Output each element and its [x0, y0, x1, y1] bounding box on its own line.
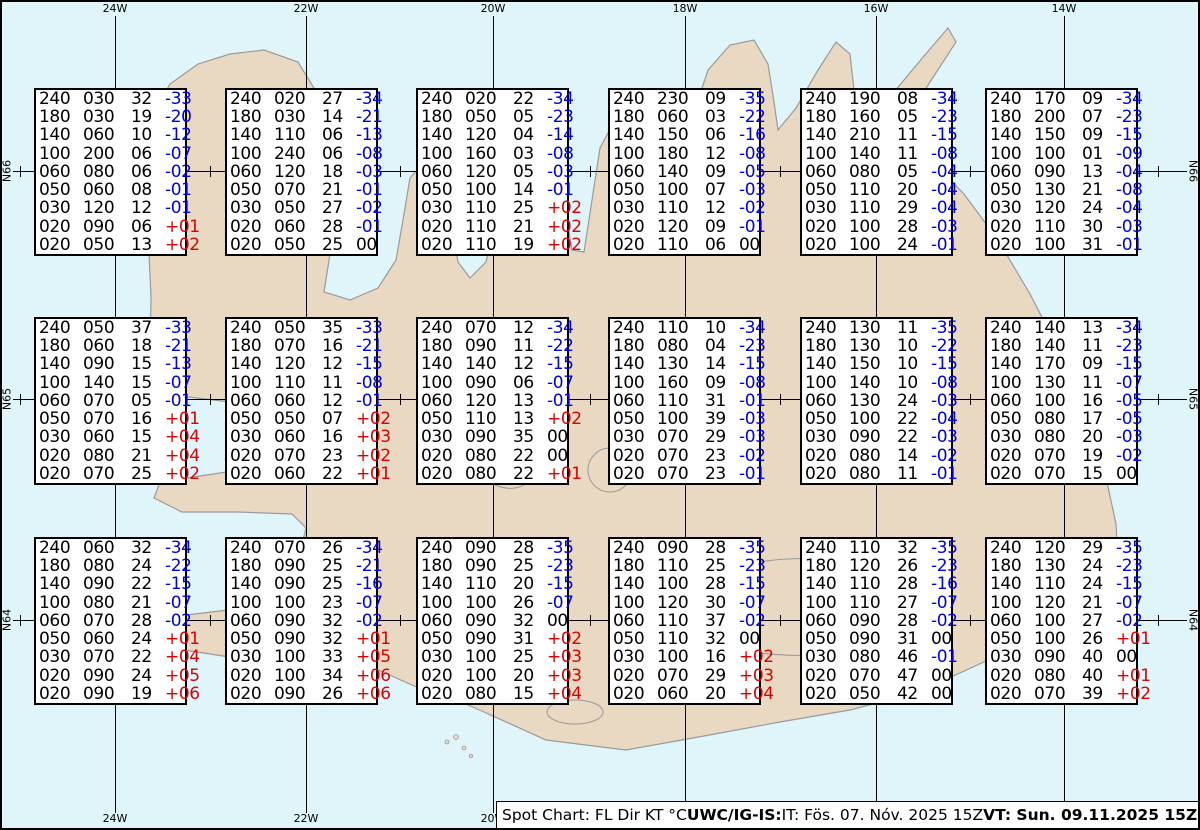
kt-value: 39: [1082, 685, 1116, 703]
dir-value: 090: [83, 685, 131, 703]
temp-value: -04: [1116, 199, 1143, 217]
dir-value: 090: [465, 428, 513, 446]
station-row: 10011011-08: [230, 374, 373, 392]
fl-value: 030: [990, 428, 1034, 446]
station-box: 24005035-3318007016-2114012012-151001101…: [225, 317, 378, 485]
dir-value: 110: [657, 392, 705, 410]
kt-value: 05: [131, 392, 165, 410]
station-row: 24002022-34: [421, 90, 564, 108]
station-row: 24011032-35: [805, 539, 948, 557]
dir-value: 090: [274, 612, 322, 630]
kt-value: 01: [1082, 145, 1116, 163]
fl-value: 240: [990, 539, 1034, 557]
dir-value: 070: [657, 465, 705, 483]
station-row: 0200701500: [990, 465, 1133, 483]
kt-value: 30: [1082, 218, 1116, 236]
dir-value: 070: [849, 667, 897, 685]
dir-value: 110: [657, 557, 705, 575]
dir-value: 070: [83, 648, 131, 666]
station-row: 0200504200: [805, 685, 948, 703]
fl-value: 180: [39, 108, 83, 126]
fl-value: 180: [990, 108, 1034, 126]
fl-value: 180: [39, 337, 83, 355]
dir-value: 140: [83, 374, 131, 392]
dir-value: 030: [274, 108, 322, 126]
fl-value: 030: [230, 428, 274, 446]
station-row: 05010039-03: [613, 410, 756, 428]
dir-value: 090: [83, 218, 131, 236]
kt-value: 25: [513, 199, 547, 217]
fl-value: 060: [613, 163, 657, 181]
station-row: 24014013-34: [990, 319, 1133, 337]
fl-value: 050: [39, 410, 83, 428]
dir-value: 100: [465, 648, 513, 666]
dir-value: 020: [465, 90, 513, 108]
station-row: 02006020+04: [613, 685, 756, 703]
kt-value: 05: [897, 163, 931, 181]
dir-value: 180: [657, 145, 705, 163]
kt-value: 13: [513, 410, 547, 428]
station-row: 14012004-14: [421, 126, 564, 144]
temp-value: -21: [165, 337, 192, 355]
dir-value: 060: [83, 630, 131, 648]
station-box: 24009028-3518009025-2314011020-151001002…: [416, 537, 569, 705]
dir-value: 110: [657, 319, 705, 337]
fl-value: 100: [39, 145, 83, 163]
dir-value: 120: [657, 594, 705, 612]
dir-value: 100: [1034, 630, 1082, 648]
kt-value: 32: [322, 612, 356, 630]
dir-value: 080: [83, 594, 131, 612]
fl-value: 020: [421, 218, 465, 236]
kt-value: 06: [705, 126, 739, 144]
kt-value: 06: [513, 374, 547, 392]
dir-value: 100: [465, 667, 513, 685]
kt-value: 15: [131, 428, 165, 446]
kt-value: 35: [513, 428, 547, 446]
station-row: 03012012-01: [39, 199, 182, 217]
kt-value: 15: [131, 374, 165, 392]
kt-value: 23: [705, 465, 739, 483]
station-row: 18007016-21: [230, 337, 373, 355]
temp-value: +02: [356, 447, 391, 465]
kt-value: 29: [1082, 539, 1116, 557]
dir-value: 080: [1034, 410, 1082, 428]
temp-value: -02: [165, 612, 192, 630]
dir-value: 080: [849, 163, 897, 181]
kt-value: 20: [513, 575, 547, 593]
dir-value: 120: [465, 126, 513, 144]
temp-value: +04: [547, 685, 582, 703]
kt-value: 12: [131, 199, 165, 217]
kt-value: 10: [131, 126, 165, 144]
fl-value: 180: [230, 108, 274, 126]
temp-value: -05: [1116, 410, 1143, 428]
kt-value: 12: [322, 392, 356, 410]
station-row: 06012013-01: [421, 392, 564, 410]
dir-value: 130: [657, 355, 705, 373]
station-row: 02009006+01: [39, 218, 182, 236]
temp-value: -04: [931, 199, 958, 217]
fl-value: 100: [805, 594, 849, 612]
fl-value: 100: [990, 374, 1034, 392]
fl-value: 050: [613, 181, 657, 199]
dir-value: 110: [465, 575, 513, 593]
temp-value: -23: [931, 108, 958, 126]
kt-value: 21: [513, 218, 547, 236]
kt-value: 09: [1082, 126, 1116, 144]
fl-value: 050: [990, 181, 1034, 199]
station-row: 24002027-34: [230, 90, 373, 108]
station-row: 02008040+01: [990, 667, 1133, 685]
dir-value: 090: [465, 337, 513, 355]
station-row: 06007005-01: [39, 392, 182, 410]
temp-value: -01: [356, 218, 383, 236]
station-row: 02010031-01: [990, 236, 1133, 254]
station-row: 18009011-22: [421, 337, 564, 355]
dir-value: 150: [657, 126, 705, 144]
kt-value: 11: [897, 126, 931, 144]
fl-value: 100: [990, 594, 1034, 612]
station-row: 14017009-15: [990, 355, 1133, 373]
station-row: 05008017-05: [990, 410, 1133, 428]
temp-value: -02: [356, 612, 383, 630]
fl-value: 020: [230, 218, 274, 236]
station-row: 24012029-35: [990, 539, 1133, 557]
station-row: 02007023-02: [613, 447, 756, 465]
dir-value: 120: [274, 163, 322, 181]
kt-value: 40: [1082, 667, 1116, 685]
fl-value: 100: [613, 374, 657, 392]
fl-value: 100: [230, 374, 274, 392]
station-row: 05011013+02: [421, 410, 564, 428]
station-row: 14011028-16: [805, 575, 948, 593]
kt-value: 20: [705, 685, 739, 703]
dir-value: 100: [274, 667, 322, 685]
station-row: 24019008-34: [805, 90, 948, 108]
temp-value: -07: [356, 594, 383, 612]
station-row: 18006003-22: [613, 108, 756, 126]
kt-value: 25: [322, 236, 356, 254]
temp-value: 00: [356, 236, 377, 254]
dir-value: 120: [465, 163, 513, 181]
fl-value: 030: [990, 648, 1034, 666]
dir-value: 100: [274, 648, 322, 666]
station-row: 03011025+02: [421, 199, 564, 217]
kt-value: 22: [897, 428, 931, 446]
kt-value: 06: [131, 218, 165, 236]
fl-value: 140: [805, 355, 849, 373]
kt-value: 14: [322, 108, 356, 126]
temp-value: +01: [356, 465, 391, 483]
fl-value: 180: [990, 337, 1034, 355]
kt-value: 26: [322, 539, 356, 557]
station-row: 02007039+02: [990, 685, 1133, 703]
station-row: 03009022-03: [805, 428, 948, 446]
dir-value: 070: [274, 337, 322, 355]
temp-value: -03: [931, 428, 958, 446]
kt-value: 31: [897, 630, 931, 648]
dir-value: 110: [849, 539, 897, 557]
kt-value: 16: [322, 428, 356, 446]
station-row: 14009015-13: [39, 355, 182, 373]
temp-value: +06: [356, 667, 391, 685]
temp-value: -01: [356, 181, 383, 199]
fl-value: 030: [230, 199, 274, 217]
fl-value: 020: [230, 685, 274, 703]
fl-value: 240: [39, 539, 83, 557]
kt-value: 30: [705, 594, 739, 612]
fl-value: 060: [613, 612, 657, 630]
fl-value: 240: [421, 90, 465, 108]
kt-value: 31: [513, 630, 547, 648]
kt-value: 24: [1082, 199, 1116, 217]
dir-value: 090: [465, 539, 513, 557]
temp-value: -07: [1116, 374, 1143, 392]
kt-value: 22: [513, 90, 547, 108]
kt-value: 10: [705, 319, 739, 337]
fl-value: 100: [421, 374, 465, 392]
dir-value: 080: [465, 447, 513, 465]
kt-value: 09: [705, 218, 739, 236]
temp-value: -20: [165, 108, 192, 126]
fl-value: 020: [39, 236, 83, 254]
dir-value: 160: [849, 108, 897, 126]
temp-value: -01: [739, 218, 766, 236]
temp-value: -07: [165, 594, 192, 612]
temp-value: -03: [1116, 218, 1143, 236]
station-row: 14011006-13: [230, 126, 373, 144]
station-row: 24009028-35: [421, 539, 564, 557]
temp-value: +02: [356, 410, 391, 428]
spot-chart-canvas: 24W24W22W22W20W20W18W16W14WN66N66N65N65N…: [0, 0, 1200, 830]
temp-value: -03: [356, 163, 383, 181]
fl-value: 100: [990, 145, 1034, 163]
kt-value: 13: [1082, 319, 1116, 337]
temp-value: -07: [547, 374, 574, 392]
dir-value: 110: [657, 612, 705, 630]
dir-value: 060: [657, 685, 705, 703]
fl-value: 140: [421, 355, 465, 373]
dir-value: 050: [849, 685, 897, 703]
station-row: 10010001-09: [990, 145, 1133, 163]
fl-value: 180: [421, 108, 465, 126]
station-row: 03008046-01: [805, 648, 948, 666]
fl-value: 060: [990, 392, 1034, 410]
fl-value: 240: [613, 90, 657, 108]
station-row: 24007026-34: [230, 539, 373, 557]
dir-value: 120: [274, 355, 322, 373]
temp-value: +01: [165, 410, 200, 428]
kt-value: 06: [705, 236, 739, 254]
station-row: 02008015+04: [421, 685, 564, 703]
fl-value: 180: [613, 337, 657, 355]
station-row: 10013011-07: [990, 374, 1133, 392]
temp-value: -34: [1116, 90, 1143, 108]
station-row: 03007029-03: [613, 428, 756, 446]
dir-value: 090: [274, 557, 322, 575]
kt-value: 27: [897, 594, 931, 612]
kt-value: 11: [897, 465, 931, 483]
fl-value: 100: [421, 145, 465, 163]
fl-value: 180: [805, 108, 849, 126]
dir-value: 090: [274, 685, 322, 703]
station-row: 24017009-34: [990, 90, 1133, 108]
station-row: 18011025-23: [613, 557, 756, 575]
fl-value: 050: [613, 410, 657, 428]
station-row: 18008004-23: [613, 337, 756, 355]
kt-value: 12: [322, 355, 356, 373]
fl-value: 100: [805, 374, 849, 392]
kt-value: 14: [705, 355, 739, 373]
fl-value: 140: [613, 355, 657, 373]
temp-value: -02: [931, 612, 958, 630]
kt-value: 03: [513, 145, 547, 163]
station-row: 02007023+02: [230, 447, 373, 465]
dir-value: 110: [657, 630, 705, 648]
station-row: 10014010-08: [805, 374, 948, 392]
fl-value: 060: [805, 163, 849, 181]
fl-value: 140: [230, 126, 274, 144]
fl-value: 050: [421, 630, 465, 648]
kt-value: 15: [131, 355, 165, 373]
station-row: 14011024-15: [990, 575, 1133, 593]
station-row: 06010027-02: [990, 612, 1133, 630]
station-row: 02005013+02: [39, 236, 182, 254]
dir-value: 120: [1034, 199, 1082, 217]
dir-value: 100: [1034, 612, 1082, 630]
dir-value: 090: [465, 612, 513, 630]
station-row: 18009025-21: [230, 557, 373, 575]
station-row: 06009013-04: [990, 163, 1133, 181]
fl-value: 020: [230, 667, 274, 685]
kt-value: 32: [131, 90, 165, 108]
temp-value: -05: [739, 163, 766, 181]
temp-value: -01: [547, 181, 574, 199]
dir-value: 050: [83, 236, 131, 254]
dir-value: 200: [83, 145, 131, 163]
kt-value: 31: [1082, 236, 1116, 254]
station-row: 18003014-21: [230, 108, 373, 126]
station-row: 0201100600: [613, 236, 756, 254]
dir-value: 080: [1034, 428, 1082, 446]
dir-value: 110: [657, 236, 705, 254]
fl-value: 030: [39, 199, 83, 217]
temp-value: -22: [165, 557, 192, 575]
station-row: 06008006-02: [39, 163, 182, 181]
fl-value: 020: [39, 685, 83, 703]
kt-value: 14: [897, 447, 931, 465]
kt-value: 06: [131, 163, 165, 181]
fl-value: 030: [990, 199, 1034, 217]
station-row: 03005027-02: [230, 199, 373, 217]
dir-value: 070: [83, 465, 131, 483]
kt-value: 18: [322, 163, 356, 181]
dir-value: 160: [465, 145, 513, 163]
temp-value: -08: [547, 145, 574, 163]
station-row: 0501103200: [613, 630, 756, 648]
temp-value: -22: [739, 108, 766, 126]
station-row: 10014015-07: [39, 374, 182, 392]
dir-value: 050: [274, 410, 322, 428]
dir-value: 100: [849, 410, 897, 428]
station-box: 24005037-3318006018-2114009015-131001401…: [34, 317, 187, 485]
kt-value: 22: [513, 447, 547, 465]
station-row: 24007012-34: [421, 319, 564, 337]
station-box: 24017009-3418020007-2314015009-151001000…: [985, 88, 1138, 256]
fl-value: 020: [990, 465, 1034, 483]
kt-value: 09: [705, 374, 739, 392]
fl-value: 100: [805, 145, 849, 163]
dir-value: 070: [1034, 685, 1082, 703]
kt-value: 32: [131, 539, 165, 557]
kt-value: 16: [131, 410, 165, 428]
fl-value: 060: [421, 392, 465, 410]
dir-value: 090: [274, 575, 322, 593]
temp-value: -02: [356, 199, 383, 217]
fl-value: 100: [230, 594, 274, 612]
fl-value: 030: [805, 428, 849, 446]
dir-value: 070: [465, 319, 513, 337]
fl-value: 050: [990, 630, 1034, 648]
caption-segment: Spot Chart: FL Dir KT °C: [502, 806, 687, 824]
fl-value: 030: [421, 199, 465, 217]
temp-value: -07: [547, 594, 574, 612]
kt-value: 08: [131, 181, 165, 199]
kt-value: 28: [322, 218, 356, 236]
station-row: 10024006-08: [230, 145, 373, 163]
station-box: 24014013-3418014011-2314017009-151001301…: [985, 317, 1138, 485]
dir-value: 130: [849, 319, 897, 337]
station-row: 02008022+01: [421, 465, 564, 483]
temp-value: -08: [739, 374, 766, 392]
station-row: 0600903200: [421, 612, 564, 630]
temp-value: +06: [165, 685, 200, 703]
dir-value: 070: [274, 539, 322, 557]
kt-value: 19: [131, 685, 165, 703]
fl-value: 180: [421, 337, 465, 355]
kt-value: 29: [897, 199, 931, 217]
dir-value: 120: [849, 557, 897, 575]
temp-value: +03: [547, 648, 582, 666]
fl-value: 140: [990, 355, 1034, 373]
temp-value: 00: [1116, 648, 1137, 666]
station-row: 18012026-23: [805, 557, 948, 575]
dir-value: 090: [465, 630, 513, 648]
temp-value: -01: [165, 199, 192, 217]
station-row: 06009028-02: [805, 612, 948, 630]
dir-value: 030: [83, 108, 131, 126]
kt-value: 10: [897, 337, 931, 355]
station-row: 05011020-04: [805, 181, 948, 199]
kt-value: 03: [705, 108, 739, 126]
station-row: 24013011-35: [805, 319, 948, 337]
station-box: 24007012-3418009011-2214014012-151000900…: [416, 317, 569, 485]
fl-value: 240: [613, 319, 657, 337]
dir-value: 060: [83, 181, 131, 199]
fl-value: 140: [613, 126, 657, 144]
dir-value: 140: [657, 163, 705, 181]
temp-value: -35: [931, 539, 958, 557]
dir-value: 110: [274, 126, 322, 144]
station-row: 18005005-23: [421, 108, 564, 126]
dir-value: 110: [1034, 218, 1082, 236]
dir-value: 090: [849, 612, 897, 630]
kt-value: 08: [897, 90, 931, 108]
kt-value: 16: [322, 337, 356, 355]
temp-value: -21: [356, 557, 383, 575]
dir-value: 090: [274, 630, 322, 648]
